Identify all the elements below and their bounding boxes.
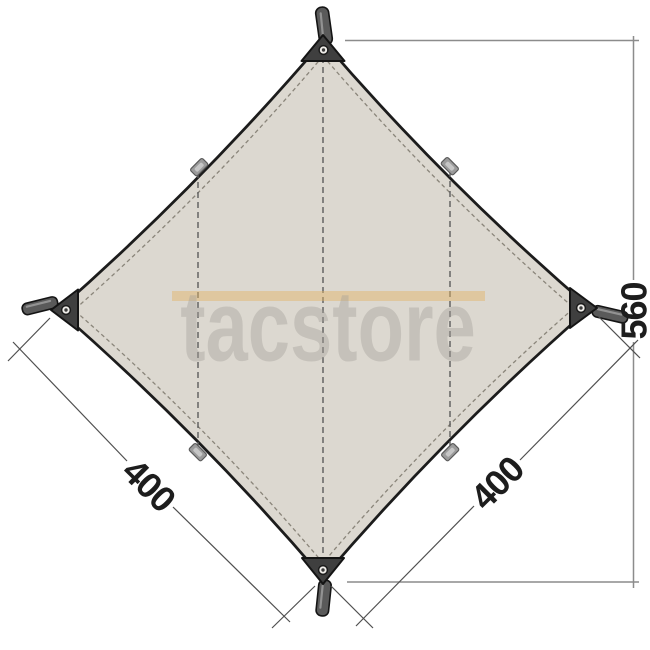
watermark-text: tacstore <box>180 270 476 381</box>
strap-loop-icon <box>316 579 332 616</box>
bottom-corner-strap <box>316 579 332 616</box>
grommet-hole <box>322 48 325 51</box>
grommet-hole <box>321 568 324 571</box>
diagram-canvas: 560 400 400 tacstore <box>0 0 650 650</box>
grommet-right <box>577 304 586 313</box>
tarp-dimension-diagram: 560 400 400 tacstore <box>0 0 650 650</box>
dimension-label-560: 560 <box>614 282 650 339</box>
watermark: tacstore <box>172 270 485 381</box>
grommet-hole <box>64 308 67 311</box>
grommet-top <box>319 46 328 55</box>
grommet-left <box>62 306 71 315</box>
grommet-hole <box>579 306 582 309</box>
grommet-bottom <box>319 566 328 575</box>
